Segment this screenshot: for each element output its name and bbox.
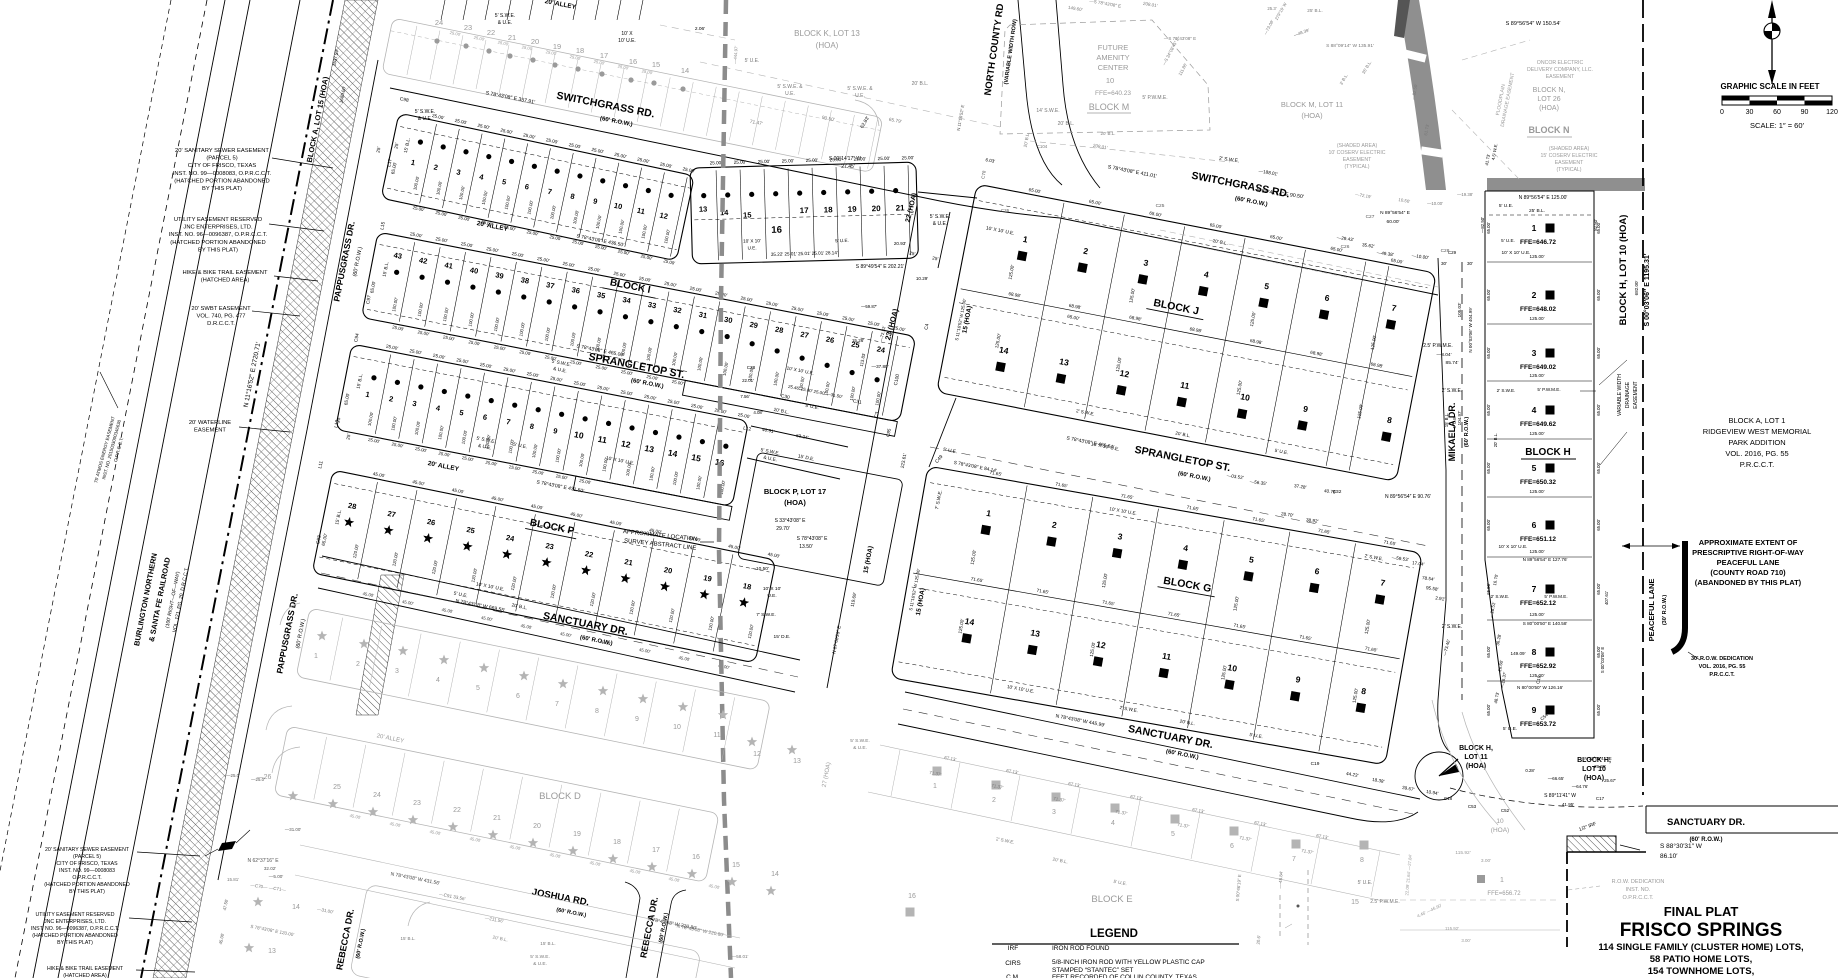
svg-text:86.10′: 86.10′ — [1660, 853, 1678, 860]
svg-text:S 80°00′50″ E 140.58′: S 80°00′50″ E 140.58′ — [1523, 621, 1568, 626]
svg-text:UTILITY EASEMENT RESERVED: UTILITY EASEMENT RESERVED — [174, 217, 262, 223]
svg-text:25' B.L.: 25' B.L. — [1529, 208, 1545, 214]
svg-text:5' U.E.: 5' U.E. — [745, 58, 760, 64]
svg-text:3.00′: 3.00′ — [1481, 858, 1491, 864]
svg-text:20.93′: 20.93′ — [894, 241, 906, 246]
svg-text:N 00°03′06″ W 404.99′: N 00°03′06″ W 404.99′ — [1468, 307, 1473, 352]
svg-text:65.00': 65.00' — [1486, 519, 1491, 531]
svg-text:125.00′: 125.00′ — [1530, 373, 1545, 378]
svg-text:1: 1 — [1532, 223, 1537, 233]
svg-text:65.00': 65.00' — [1486, 404, 1491, 416]
svg-text:4: 4 — [1532, 405, 1537, 415]
svg-text:20: 20 — [531, 37, 539, 46]
svg-text:40: 40 — [469, 265, 479, 275]
svg-text:18: 18 — [824, 205, 834, 214]
svg-text:U.E.: U.E. — [785, 91, 795, 97]
svg-text:20' B.L.: 20' B.L. — [1058, 121, 1075, 127]
svg-text:23: 23 — [413, 800, 421, 807]
svg-text:20.6′: 20.6′ — [1256, 935, 1262, 945]
svg-text:EASEMENT: EASEMENT — [1633, 381, 1639, 409]
svg-text:104.97′: 104.97′ — [1457, 411, 1462, 426]
svg-text:S 00°03′06″ E: S 00°03′06″ E — [1600, 647, 1605, 674]
svg-text:BLOCK A, LOT 1: BLOCK A, LOT 1 — [1729, 416, 1786, 425]
svg-text:17: 17 — [600, 51, 608, 60]
svg-text:STAMPED “STANTEC” SET: STAMPED “STANTEC” SET — [1052, 967, 1133, 974]
svg-text:S 00°03′06″ E 1195.31′: S 00°03′06″ E 1195.31′ — [1643, 253, 1651, 326]
svg-text:5' U.E.: 5' U.E. — [1358, 880, 1373, 886]
svg-text:2.5' P.W.M.E.: 2.5' P.W.M.E. — [1370, 899, 1400, 905]
svg-text:20' SWBT EASEMENT: 20' SWBT EASEMENT — [191, 306, 251, 312]
svg-text:65.00': 65.00' — [1486, 289, 1491, 301]
svg-text:13: 13 — [793, 758, 801, 765]
svg-text:60.00′: 60.00′ — [1387, 219, 1400, 225]
svg-text:BY THIS PLAT): BY THIS PLAT) — [57, 940, 93, 946]
svg-text:5: 5 — [1532, 463, 1537, 473]
svg-text:IRON ROD FOUND: IRON ROD FOUND — [1052, 945, 1110, 952]
svg-text:(ABANDONED BY THIS PLAT): (ABANDONED BY THIS PLAT) — [1695, 578, 1802, 587]
svg-text:24: 24 — [435, 18, 443, 27]
svg-text:LOT 26: LOT 26 — [1537, 96, 1560, 103]
svg-text:90: 90 — [1801, 109, 1809, 116]
svg-text:125.00′: 125.00′ — [1530, 673, 1545, 678]
svg-text:C19: C19 — [1311, 761, 1320, 767]
svg-text:30: 30 — [723, 315, 733, 325]
svg-text:FFE=652.92: FFE=652.92 — [1520, 663, 1556, 670]
svg-text:—8.04′: —8.04′ — [1436, 352, 1451, 358]
svg-text:—S 78°43′08″ E: —S 78°43′08″ E — [1164, 36, 1196, 41]
svg-text:(HATCHED AREA): (HATCHED AREA) — [63, 973, 107, 978]
svg-text:65.00': 65.00' — [1596, 583, 1601, 595]
svg-text:125.00′: 125.00′ — [1530, 489, 1545, 494]
svg-text:5' P.W.M.E.: 5' P.W.M.E. — [1537, 387, 1560, 392]
svg-text:FEET RECORDED OF COLLIN COUNTY: FEET RECORDED OF COLLIN COUNTY, TEXAS — [1052, 974, 1197, 978]
svg-text:29: 29 — [749, 320, 759, 330]
svg-text:13: 13 — [699, 205, 708, 214]
svg-text:23: 23 — [545, 541, 555, 551]
svg-text:65.00': 65.00' — [1596, 404, 1601, 416]
svg-text:8: 8 — [1532, 647, 1537, 657]
svg-text:FFE=650.32: FFE=650.32 — [1520, 479, 1556, 486]
svg-text:INST. NO.: INST. NO. — [1626, 887, 1651, 893]
svg-text:FFE=640.23: FFE=640.23 — [1095, 90, 1131, 97]
svg-text:20' B.L.: 20' B.L. — [1493, 433, 1498, 447]
svg-text:12: 12 — [753, 751, 761, 758]
svg-text:(HOA): (HOA) — [1466, 763, 1486, 770]
svg-text:26: 26 — [825, 335, 835, 345]
svg-text:5' U.E.: 5' U.E. — [1501, 238, 1515, 243]
svg-text:1: 1 — [314, 653, 318, 660]
svg-text:5' S.W.E. &: 5' S.W.E. & — [777, 84, 803, 90]
svg-text:BLOCK M, LOT 11: BLOCK M, LOT 11 — [1281, 100, 1343, 109]
svg-text:10.29′: 10.29′ — [916, 276, 928, 281]
svg-text:BLOCK H: BLOCK H — [1525, 447, 1571, 458]
svg-text:19: 19 — [573, 831, 581, 838]
svg-text:2: 2 — [356, 661, 360, 668]
svg-text:19: 19 — [703, 573, 713, 583]
svg-text:RIDGEVIEW WEST MEMORIAL: RIDGEVIEW WEST MEMORIAL — [1703, 427, 1812, 436]
svg-text:C17: C17 — [1596, 796, 1605, 801]
svg-text:65.00': 65.00' — [1596, 289, 1601, 301]
svg-text:37: 37 — [545, 280, 555, 290]
svg-text:16: 16 — [908, 893, 916, 900]
svg-text:FFE=649.02: FFE=649.02 — [1520, 364, 1556, 371]
svg-text:N 89°56′54″ E 90.76′: N 89°56′54″ E 90.76′ — [1385, 494, 1431, 500]
svg-text:—66.65′: —66.65′ — [1548, 776, 1564, 781]
svg-text:5' S.W.E.: 5' S.W.E. — [415, 109, 435, 115]
svg-text:682.00′: 682.00′ — [1634, 281, 1639, 296]
svg-text:C26: C26 — [1341, 244, 1350, 250]
svg-text:—31.00′: —31.00′ — [285, 827, 301, 832]
svg-text:S 88°30′31″ W: S 88°30′31″ W — [1660, 842, 1703, 850]
svg-text:—58.01′: —58.01′ — [732, 954, 749, 959]
svg-text:BLOCK H,: BLOCK H, — [1577, 757, 1611, 764]
svg-text:INST. NO. 99—0008083: INST. NO. 99—0008083 — [59, 868, 115, 874]
svg-text:INST. NO. 96—0096387, O.P.R.C.: INST. NO. 96—0096387, O.P.R.C.C.T. — [169, 232, 268, 238]
svg-text:U.E.: U.E. — [748, 245, 757, 250]
svg-text:5' S.W.E.: 5' S.W.E. — [930, 214, 950, 220]
svg-text:105.03′: 105.03′ — [1457, 303, 1462, 318]
svg-text:15' COSERV ELECTRIC: 15' COSERV ELECTRIC — [1540, 153, 1597, 159]
svg-text:(HOA): (HOA) — [816, 41, 839, 50]
svg-text:10' COSERV ELECTRIC: 10' COSERV ELECTRIC — [1328, 150, 1385, 156]
svg-text:35: 35 — [596, 290, 606, 300]
svg-text:25: 25 — [333, 784, 341, 791]
svg-text:28: 28 — [347, 501, 357, 511]
svg-text:(HOA): (HOA) — [1491, 827, 1509, 834]
svg-text:JNC ENTERPRISES, LTD.: JNC ENTERPRISES, LTD. — [183, 225, 253, 231]
svg-text:—82.50′: —82.50′ — [1480, 217, 1485, 233]
svg-text:S 88°09′14″ W 135.91′: S 88°09′14″ W 135.91′ — [1326, 43, 1374, 49]
svg-text:22: 22 — [584, 549, 594, 559]
svg-text:15: 15 — [743, 210, 752, 219]
svg-text:21: 21 — [508, 33, 516, 42]
svg-text:EASEMENT: EASEMENT — [1555, 160, 1584, 166]
svg-text:10' X: 10' X — [621, 31, 633, 37]
svg-text:13.50′: 13.50′ — [799, 544, 813, 550]
svg-text:PEACEFUL LANE: PEACEFUL LANE — [1647, 579, 1656, 642]
svg-text:EASEMENT: EASEMENT — [1546, 74, 1575, 80]
svg-text:4.08′: 4.08′ — [753, 410, 763, 415]
svg-text:ONCOR ELECTRIC: ONCOR ELECTRIC — [1537, 60, 1584, 66]
svg-text:85.74′: 85.74′ — [1446, 360, 1459, 366]
svg-text:15′ B.L.: 15′ B.L. — [540, 941, 555, 946]
svg-text:20: 20 — [872, 204, 882, 213]
svg-text:36: 36 — [571, 285, 581, 295]
svg-text:17: 17 — [800, 206, 810, 215]
svg-text:10: 10 — [673, 724, 681, 731]
svg-text:—19.38′: —19.38′ — [1457, 192, 1473, 197]
svg-text:2: 2 — [1532, 290, 1537, 300]
svg-text:—25.0′: —25.0′ — [251, 777, 265, 782]
svg-text:5' S.W.E.: 5' S.W.E. — [530, 954, 550, 960]
svg-text:10' X 10' U.E.: 10' X 10' U.E. — [1501, 250, 1530, 256]
svg-text:14: 14 — [292, 904, 300, 911]
svg-text:25.00′: 25.00′ — [806, 158, 819, 163]
svg-text:VOL. 2016, PG. 55: VOL. 2016, PG. 55 — [1725, 449, 1788, 458]
svg-text:43: 43 — [393, 251, 403, 261]
svg-text:—25.0′: —25.0′ — [226, 773, 240, 778]
svg-text:65.00': 65.00' — [1596, 462, 1601, 474]
svg-text:9: 9 — [635, 716, 639, 723]
svg-text:O.P.R.C.C.T.: O.P.R.C.C.T. — [72, 875, 101, 881]
svg-text:31: 31 — [698, 310, 708, 320]
svg-text:2: 2 — [992, 797, 996, 804]
svg-text:C104: C104 — [1037, 144, 1048, 149]
svg-text:(TYPICAL): (TYPICAL) — [1344, 164, 1369, 170]
svg-text:21: 21 — [624, 557, 634, 567]
svg-text:18: 18 — [742, 581, 752, 591]
svg-text:(HOA): (HOA) — [1301, 111, 1323, 120]
svg-text:7: 7 — [1292, 856, 1296, 863]
svg-text:65.00': 65.00' — [1486, 646, 1491, 658]
svg-text:27: 27 — [800, 330, 810, 340]
svg-text:& U.E.: & U.E. — [533, 961, 547, 967]
svg-text:25.67′: 25.67′ — [1604, 778, 1616, 783]
svg-text:125.00′: 125.00′ — [1530, 549, 1545, 554]
svg-text:FFE=651.12: FFE=651.12 — [1520, 536, 1556, 543]
svg-text:FFE=653.72: FFE=653.72 — [1520, 721, 1556, 728]
svg-text:32: 32 — [673, 305, 683, 315]
svg-text:3: 3 — [1052, 809, 1056, 816]
svg-text:16: 16 — [771, 225, 782, 236]
svg-text:20' SANITARY SEWER EASEMENT: 20' SANITARY SEWER EASEMENT — [175, 148, 269, 154]
svg-text:28: 28 — [774, 325, 784, 335]
svg-text:120: 120 — [1826, 109, 1838, 116]
svg-text:APPROXIMATE EXTENT OF: APPROXIMATE EXTENT OF — [1699, 538, 1798, 547]
svg-text:CITY OF FRISCO, TEXAS: CITY OF FRISCO, TEXAS — [188, 163, 257, 169]
svg-text:C26: C26 — [1001, 208, 1010, 213]
svg-text:20' B.L.: 20' B.L. — [912, 81, 929, 87]
svg-text:(HOA): (HOA) — [1539, 105, 1559, 112]
svg-text:10' X 10' U.E.: 10' X 10' U.E. — [1498, 544, 1527, 550]
svg-text:4: 4 — [1111, 820, 1115, 827]
svg-text:21: 21 — [896, 203, 906, 212]
svg-text:BY THIS PLAT): BY THIS PLAT) — [202, 186, 242, 192]
svg-text:2.06′: 2.06′ — [695, 26, 705, 32]
svg-text:18: 18 — [576, 46, 584, 55]
svg-text:N 89°56′54″ E: N 89°56′54″ E — [1380, 210, 1410, 216]
svg-text:C28: C28 — [1441, 248, 1450, 254]
svg-text:N 80°00′50″ W 126.16′: N 80°00′50″ W 126.16′ — [1517, 685, 1563, 690]
svg-text:CITY OF FRISCO, TEXAS: CITY OF FRISCO, TEXAS — [56, 861, 118, 867]
svg-text:65.00': 65.00' — [1596, 519, 1601, 531]
svg-text:O.P.R.C.C.T.: O.P.R.C.C.T. — [1622, 895, 1654, 901]
svg-text:(60' R.O.W.): (60' R.O.W.) — [1464, 417, 1470, 448]
svg-text:41: 41 — [444, 260, 454, 270]
svg-text:—5.00′: —5.00′ — [269, 874, 284, 879]
svg-text:60: 60 — [1773, 109, 1781, 116]
svg-text:N 89°56′54″ E 127.76′: N 89°56′54″ E 127.76′ — [1523, 557, 1568, 562]
svg-text:115.92′: 115.92′ — [1455, 850, 1470, 856]
svg-text:13: 13 — [1030, 627, 1041, 639]
svg-text:20: 20 — [533, 823, 541, 830]
svg-text:114 SINGLE FAMILY (CLUSTER HOM: 114 SINGLE FAMILY (CLUSTER HOME) LOTS, — [1598, 942, 1803, 953]
svg-text:9: 9 — [1532, 705, 1537, 715]
svg-text:U.E.: U.E. — [767, 593, 776, 599]
svg-text:U.E.: U.E. — [855, 93, 865, 99]
svg-text:D.R.C.C.T.: D.R.C.C.T. — [207, 321, 235, 327]
svg-text:(HATCHED AREA): (HATCHED AREA) — [201, 278, 250, 284]
svg-text:S 89°56′54″ W 150.54′: S 89°56′54″ W 150.54′ — [1506, 21, 1561, 27]
svg-text:(PARCEL 5): (PARCEL 5) — [73, 854, 101, 860]
svg-text:14: 14 — [681, 66, 689, 75]
svg-text:22: 22 — [487, 28, 495, 37]
svg-text:(SHADED AREA): (SHADED AREA) — [1337, 143, 1378, 149]
svg-text:25.00′: 25.00′ — [734, 160, 747, 165]
svg-text:21: 21 — [493, 815, 501, 822]
svg-text:30: 30 — [1746, 109, 1754, 116]
svg-text:BLOCK E: BLOCK E — [1091, 894, 1132, 905]
svg-text:(30' R.O.W.): (30' R.O.W.) — [1662, 595, 1668, 626]
svg-text:8: 8 — [1360, 857, 1364, 864]
svg-text:22.01′: 22.01′ — [742, 378, 754, 383]
svg-text:C18: C18 — [1444, 796, 1453, 801]
svg-text:5' U.E.: 5' U.E. — [835, 238, 849, 243]
svg-text:2' S.W.E.: 2' S.W.E. — [1442, 624, 1462, 630]
svg-text:10: 10 — [1496, 818, 1504, 825]
svg-text:S 00°14′17″ W: S 00°14′17″ W — [829, 156, 862, 162]
svg-text:15: 15 — [732, 862, 740, 869]
svg-text:S 89°11′41″ W: S 89°11′41″ W — [1544, 793, 1576, 799]
svg-text:S 89°49′54″ E 202.21′: S 89°49′54″ E 202.21′ — [856, 264, 905, 270]
svg-text:GRAPHIC SCALE IN FEET: GRAPHIC SCALE IN FEET — [1720, 82, 1819, 91]
svg-text:7.56′: 7.56′ — [740, 394, 750, 399]
svg-text:22: 22 — [453, 807, 461, 814]
svg-text:20: 20 — [663, 565, 673, 575]
svg-text:19: 19 — [848, 205, 858, 214]
svg-text:14: 14 — [771, 871, 779, 878]
svg-text:FFE=652.12: FFE=652.12 — [1520, 600, 1556, 607]
svg-text:26: 26 — [426, 517, 436, 527]
svg-text:N 89°56′54″ E 125.00′: N 89°56′54″ E 125.00′ — [1519, 195, 1568, 201]
svg-text:5' S.W.E.: 5' S.W.E. — [495, 13, 515, 19]
svg-text:1: 1 — [933, 783, 937, 790]
svg-text:HIKE & BIKE TRAIL EASEMENT: HIKE & BIKE TRAIL EASEMENT — [47, 966, 124, 972]
svg-text:SCALE: 1″ = 60′: SCALE: 1″ = 60′ — [1750, 121, 1804, 130]
svg-text:39: 39 — [495, 270, 505, 280]
svg-text:(COUNTY ROAD 710): (COUNTY ROAD 710) — [1710, 568, 1786, 577]
svg-text:C28: C28 — [747, 365, 756, 370]
svg-text:10' X 10': 10' X 10' — [763, 586, 781, 592]
svg-text:14: 14 — [964, 616, 975, 628]
svg-text:14' S.W.E.: 14' S.W.E. — [1036, 108, 1059, 114]
svg-text:& U.E.: & U.E. — [933, 221, 947, 227]
svg-text:7: 7 — [1532, 584, 1537, 594]
svg-text:5' P.W.M.E.: 5' P.W.M.E. — [1142, 95, 1167, 101]
svg-text:30′: 30′ — [1441, 261, 1447, 266]
svg-text:0.28′: 0.28′ — [1525, 768, 1535, 773]
svg-text:—10.00′: —10.00′ — [1427, 201, 1443, 206]
svg-text:24: 24 — [373, 792, 381, 799]
svg-text:65.00': 65.00' — [1486, 462, 1491, 474]
svg-text:PARK ADDITION: PARK ADDITION — [1728, 438, 1785, 447]
svg-text:20' SANITARY SEWER EASEMENT: 20' SANITARY SEWER EASEMENT — [45, 847, 130, 853]
svg-text:PEACEFUL LANE: PEACEFUL LANE — [1717, 558, 1780, 567]
svg-text:(TYPICAL): (TYPICAL) — [1556, 167, 1581, 173]
svg-text:CIRS: CIRS — [1005, 960, 1021, 967]
svg-text:10' X 10': 10' X 10' — [743, 238, 761, 243]
svg-text:58 PATIO HOME LOTS,: 58 PATIO HOME LOTS, — [1650, 954, 1753, 965]
svg-text:65.00': 65.00' — [1596, 704, 1601, 716]
svg-text:DELIVERY COMPANY, LLC.: DELIVERY COMPANY, LLC. — [1527, 67, 1593, 73]
svg-text:UTILITY EASEMENT RESERVED: UTILITY EASEMENT RESERVED — [36, 912, 115, 918]
svg-text:25.00′: 25.00′ — [710, 160, 723, 165]
svg-text:65.00': 65.00' — [1596, 347, 1601, 359]
svg-text:25.00′: 25.00′ — [758, 159, 771, 164]
svg-text:11: 11 — [713, 732, 720, 739]
svg-text:LEGEND: LEGEND — [1090, 928, 1138, 940]
svg-text:PRESCRIPTIVE RIGHT-OF-WAY: PRESCRIPTIVE RIGHT-OF-WAY — [1692, 548, 1804, 557]
svg-text:BLOCK P, LOT 17: BLOCK P, LOT 17 — [764, 487, 826, 496]
svg-text:25: 25 — [466, 525, 476, 535]
svg-text:33: 33 — [647, 300, 657, 310]
svg-text:115.92′: 115.92′ — [1445, 926, 1459, 931]
svg-text:15: 15 — [652, 60, 660, 69]
svg-text:25.00′: 25.00′ — [902, 155, 915, 160]
svg-text:65.00': 65.00' — [1486, 347, 1491, 359]
svg-text:AMENITY: AMENITY — [1096, 53, 1129, 62]
svg-text:15' D.E.: 15' D.E. — [774, 634, 791, 640]
svg-text:12: 12 — [1095, 639, 1106, 651]
svg-text:FINAL PLAT: FINAL PLAT — [1664, 904, 1739, 919]
svg-text:18: 18 — [613, 839, 621, 846]
svg-text:5' S.W.E.: 5' S.W.E. — [850, 738, 870, 744]
svg-text:8: 8 — [595, 708, 599, 715]
svg-text:VOL. 740, PG. 477: VOL. 740, PG. 477 — [197, 314, 246, 320]
svg-text:125.00′: 125.00′ — [1530, 431, 1545, 436]
svg-text:FFE=649.62: FFE=649.62 — [1520, 421, 1556, 428]
svg-text:IRF: IRF — [1008, 945, 1019, 952]
svg-text:10: 10 — [1106, 76, 1114, 85]
svg-text:P.R.C.C.T.: P.R.C.C.T. — [1709, 672, 1735, 678]
svg-text:19: 19 — [553, 42, 561, 51]
svg-text:BLOCK H, LOT 10 (HOA): BLOCK H, LOT 10 (HOA) — [1618, 215, 1629, 326]
svg-text:S 78°43′08″ E: S 78°43′08″ E — [797, 536, 829, 542]
svg-text:16: 16 — [692, 854, 700, 861]
svg-text:C52: C52 — [1501, 808, 1510, 813]
svg-text:15′ B.L.: 15′ B.L. — [400, 936, 415, 941]
svg-text:2' S.W.E.: 2' S.W.E. — [1442, 388, 1462, 394]
svg-text:6: 6 — [1532, 520, 1537, 530]
svg-text:4: 4 — [436, 677, 440, 684]
svg-text:15.81′: 15.81′ — [227, 877, 239, 882]
svg-text:5' P.W.M.E.: 5' P.W.M.E. — [1544, 594, 1567, 599]
svg-text:25.00′: 25.00′ — [782, 158, 795, 163]
svg-text:INST. NO. 99—0008083, O.P.R.C.: INST. NO. 99—0008083, O.P.R.C.C.T. — [173, 171, 272, 177]
svg-text:N 62°37′16″ E: N 62°37′16″ E — [247, 858, 279, 864]
svg-text:3.00′: 3.00′ — [1461, 938, 1471, 943]
svg-text:C.M.: C.M. — [1006, 974, 1020, 978]
svg-text:—37.80′: —37.80′ — [872, 364, 889, 369]
svg-text:65.00': 65.00' — [1486, 222, 1491, 234]
svg-text:20' WATERLINE: 20' WATERLINE — [189, 420, 231, 426]
svg-text:27.45′: 27.45′ — [841, 164, 855, 170]
svg-text:5/8-INCH IRON ROD WITH YELLOW: 5/8-INCH IRON ROD WITH YELLOW PLASTIC CA… — [1052, 959, 1205, 966]
svg-text:0: 0 — [1720, 109, 1724, 116]
svg-text:C53: C53 — [1468, 804, 1477, 809]
svg-text:(HATCHED PORTION ABANDONED: (HATCHED PORTION ABANDONED — [170, 240, 265, 246]
svg-text:BLOCK K, LOT 13: BLOCK K, LOT 13 — [794, 29, 860, 38]
svg-text:82.50′: 82.50′ — [1593, 219, 1598, 231]
svg-text:FFE=656.72: FFE=656.72 — [1487, 891, 1521, 897]
svg-text:38: 38 — [520, 275, 530, 285]
svg-text:7: 7 — [555, 701, 559, 708]
svg-text:25' B.L.: 25' B.L. — [1307, 8, 1322, 13]
svg-text:& U.E.: & U.E. — [853, 745, 867, 751]
svg-text:JNC ENTERPRISES, LTD.: JNC ENTERPRISES, LTD. — [44, 919, 106, 925]
svg-text:3: 3 — [1532, 348, 1537, 358]
svg-text:HIKE & BIKE TRAIL EASEMENT: HIKE & BIKE TRAIL EASEMENT — [182, 270, 268, 276]
